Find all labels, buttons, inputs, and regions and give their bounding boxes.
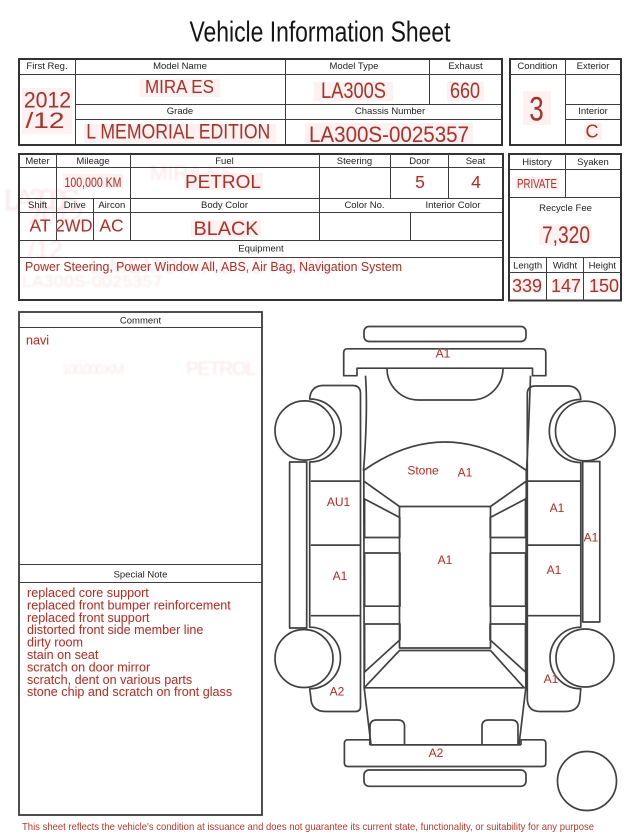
svg-text:Seat: Seat (466, 156, 486, 167)
svg-text:AC: AC (99, 216, 123, 236)
svg-text:L MEMORIAL EDITION: L MEMORIAL EDITION (86, 121, 270, 144)
svg-text:Meter: Meter (25, 156, 49, 167)
svg-text:3: 3 (529, 91, 544, 129)
svg-text:4: 4 (471, 172, 481, 192)
svg-text:Interior: Interior (578, 106, 608, 117)
svg-text:History: History (522, 157, 552, 168)
svg-text:This sheet reflects the vehicl: This sheet reflects the vehicle's condit… (22, 821, 594, 833)
svg-text:Body Color: Body Color (201, 200, 248, 211)
svg-text:Model Name: Model Name (153, 61, 207, 72)
svg-text:Power Steering, Power Window: Power Steering, Power Window All, ABS, A… (25, 260, 402, 274)
svg-text:First Reg.: First Reg. (26, 61, 67, 72)
svg-text:PETROL: PETROL (186, 359, 256, 380)
svg-text:Widht: Widht (553, 261, 578, 272)
svg-text:A1: A1 (436, 347, 451, 361)
svg-text:LA300S: LA300S (321, 78, 386, 103)
svg-text:A2: A2 (429, 746, 444, 760)
svg-text:Syaken: Syaken (577, 157, 609, 168)
svg-text:Model Type: Model Type (330, 61, 379, 72)
svg-text:Chassis Number: Chassis Number (355, 106, 425, 117)
svg-text:PETROL: PETROL (185, 171, 261, 192)
svg-text:150: 150 (589, 276, 619, 296)
svg-text:Condition: Condition (517, 61, 557, 72)
svg-text:Length: Length (513, 261, 542, 272)
svg-text:/12: /12 (26, 108, 65, 133)
svg-text:Comment: Comment (120, 316, 162, 327)
svg-text:Equipment: Equipment (238, 244, 284, 255)
svg-text:Stone: Stone (407, 464, 439, 478)
svg-text:100,000 KM: 100,000 KM (65, 175, 122, 190)
svg-text:A1: A1 (584, 531, 599, 545)
svg-text:Fuel: Fuel (215, 156, 233, 167)
svg-text:7,320: 7,320 (542, 222, 590, 249)
svg-text:Color No.: Color No. (344, 200, 384, 211)
svg-text:A1: A1 (544, 672, 559, 686)
svg-text:Recycle Fee: Recycle Fee (539, 203, 592, 214)
svg-text:A1: A1 (550, 501, 565, 515)
svg-text:A1: A1 (547, 563, 562, 577)
svg-text:LA300S-0025357: LA300S-0025357 (309, 122, 469, 147)
svg-text:Exterior: Exterior (577, 61, 610, 72)
svg-text:Mileage: Mileage (76, 156, 109, 167)
svg-text:339: 339 (512, 276, 542, 296)
svg-text:5: 5 (415, 172, 425, 192)
svg-text:Vehicle Information Sheet: Vehicle Information Sheet (190, 17, 451, 49)
svg-text:A1: A1 (458, 466, 473, 480)
svg-text:Interior Color: Interior Color (426, 200, 481, 211)
svg-text:stone chip and scratch on fron: stone chip and scratch on front glass (27, 685, 232, 699)
svg-text:Special Note: Special Note (114, 570, 168, 581)
svg-text:Exhaust: Exhaust (448, 61, 483, 72)
svg-text:AU1: AU1 (327, 495, 351, 509)
svg-text:100,000 KM: 100,000 KM (62, 361, 124, 377)
svg-text:Shift: Shift (28, 200, 47, 211)
svg-text:BLACK: BLACK (194, 218, 259, 240)
svg-text:C: C (586, 122, 599, 142)
svg-text:Grade: Grade (167, 106, 193, 117)
svg-text:Drive: Drive (64, 200, 86, 211)
svg-text:2WD: 2WD (56, 216, 93, 236)
svg-text:A2: A2 (330, 685, 345, 699)
svg-text:LA300S-0025357: LA300S-0025357 (22, 272, 162, 291)
svg-text:Steering: Steering (337, 156, 372, 167)
svg-text:AT: AT (29, 216, 50, 236)
svg-text:660: 660 (450, 78, 480, 103)
svg-text:Door: Door (409, 156, 430, 167)
svg-text:Aircon: Aircon (98, 200, 125, 211)
svg-text:147: 147 (551, 276, 581, 296)
svg-text:A1: A1 (333, 569, 348, 583)
svg-text:navi: navi (26, 334, 49, 348)
svg-text:MIRA ES: MIRA ES (145, 76, 214, 97)
svg-text:PRIVATE: PRIVATE (517, 176, 557, 191)
svg-text:A1: A1 (438, 553, 453, 567)
svg-text:Height: Height (589, 261, 617, 272)
